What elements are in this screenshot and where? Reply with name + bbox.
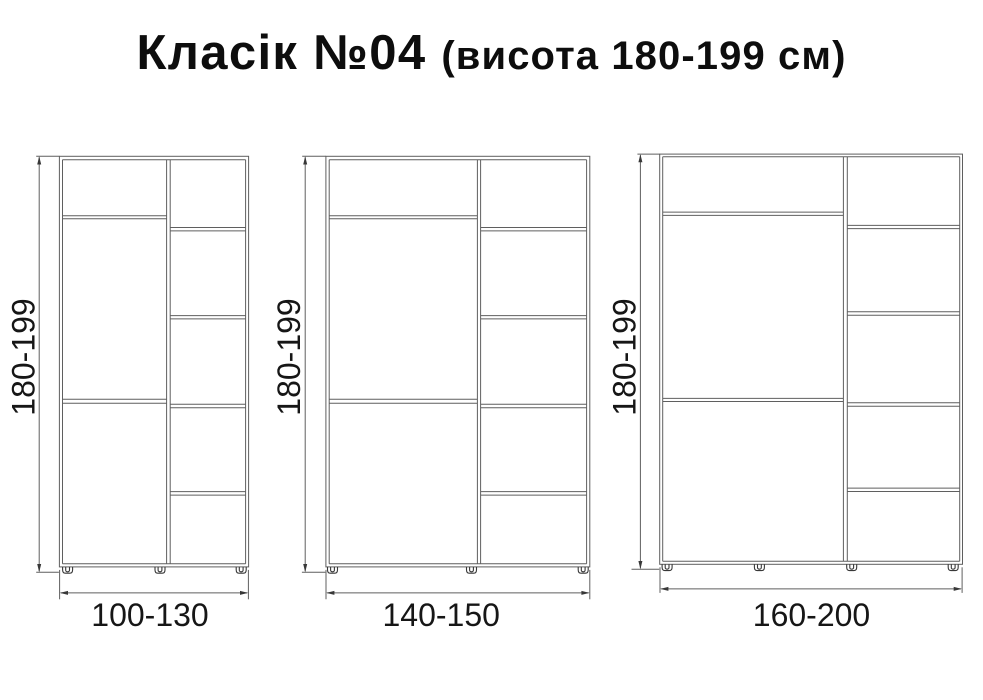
svg-text:180-199: 180-199 xyxy=(6,298,42,415)
svg-text:180-199: 180-199 xyxy=(606,298,642,415)
svg-text:140-150: 140-150 xyxy=(382,597,499,633)
svg-text:180-199: 180-199 xyxy=(271,298,307,415)
svg-text:160-200: 160-200 xyxy=(753,597,870,633)
svg-text:100-130: 100-130 xyxy=(91,597,208,633)
svg-text:Класік №04 (висота 180-199 см): Класік №04 (висота 180-199 см) xyxy=(137,26,847,80)
